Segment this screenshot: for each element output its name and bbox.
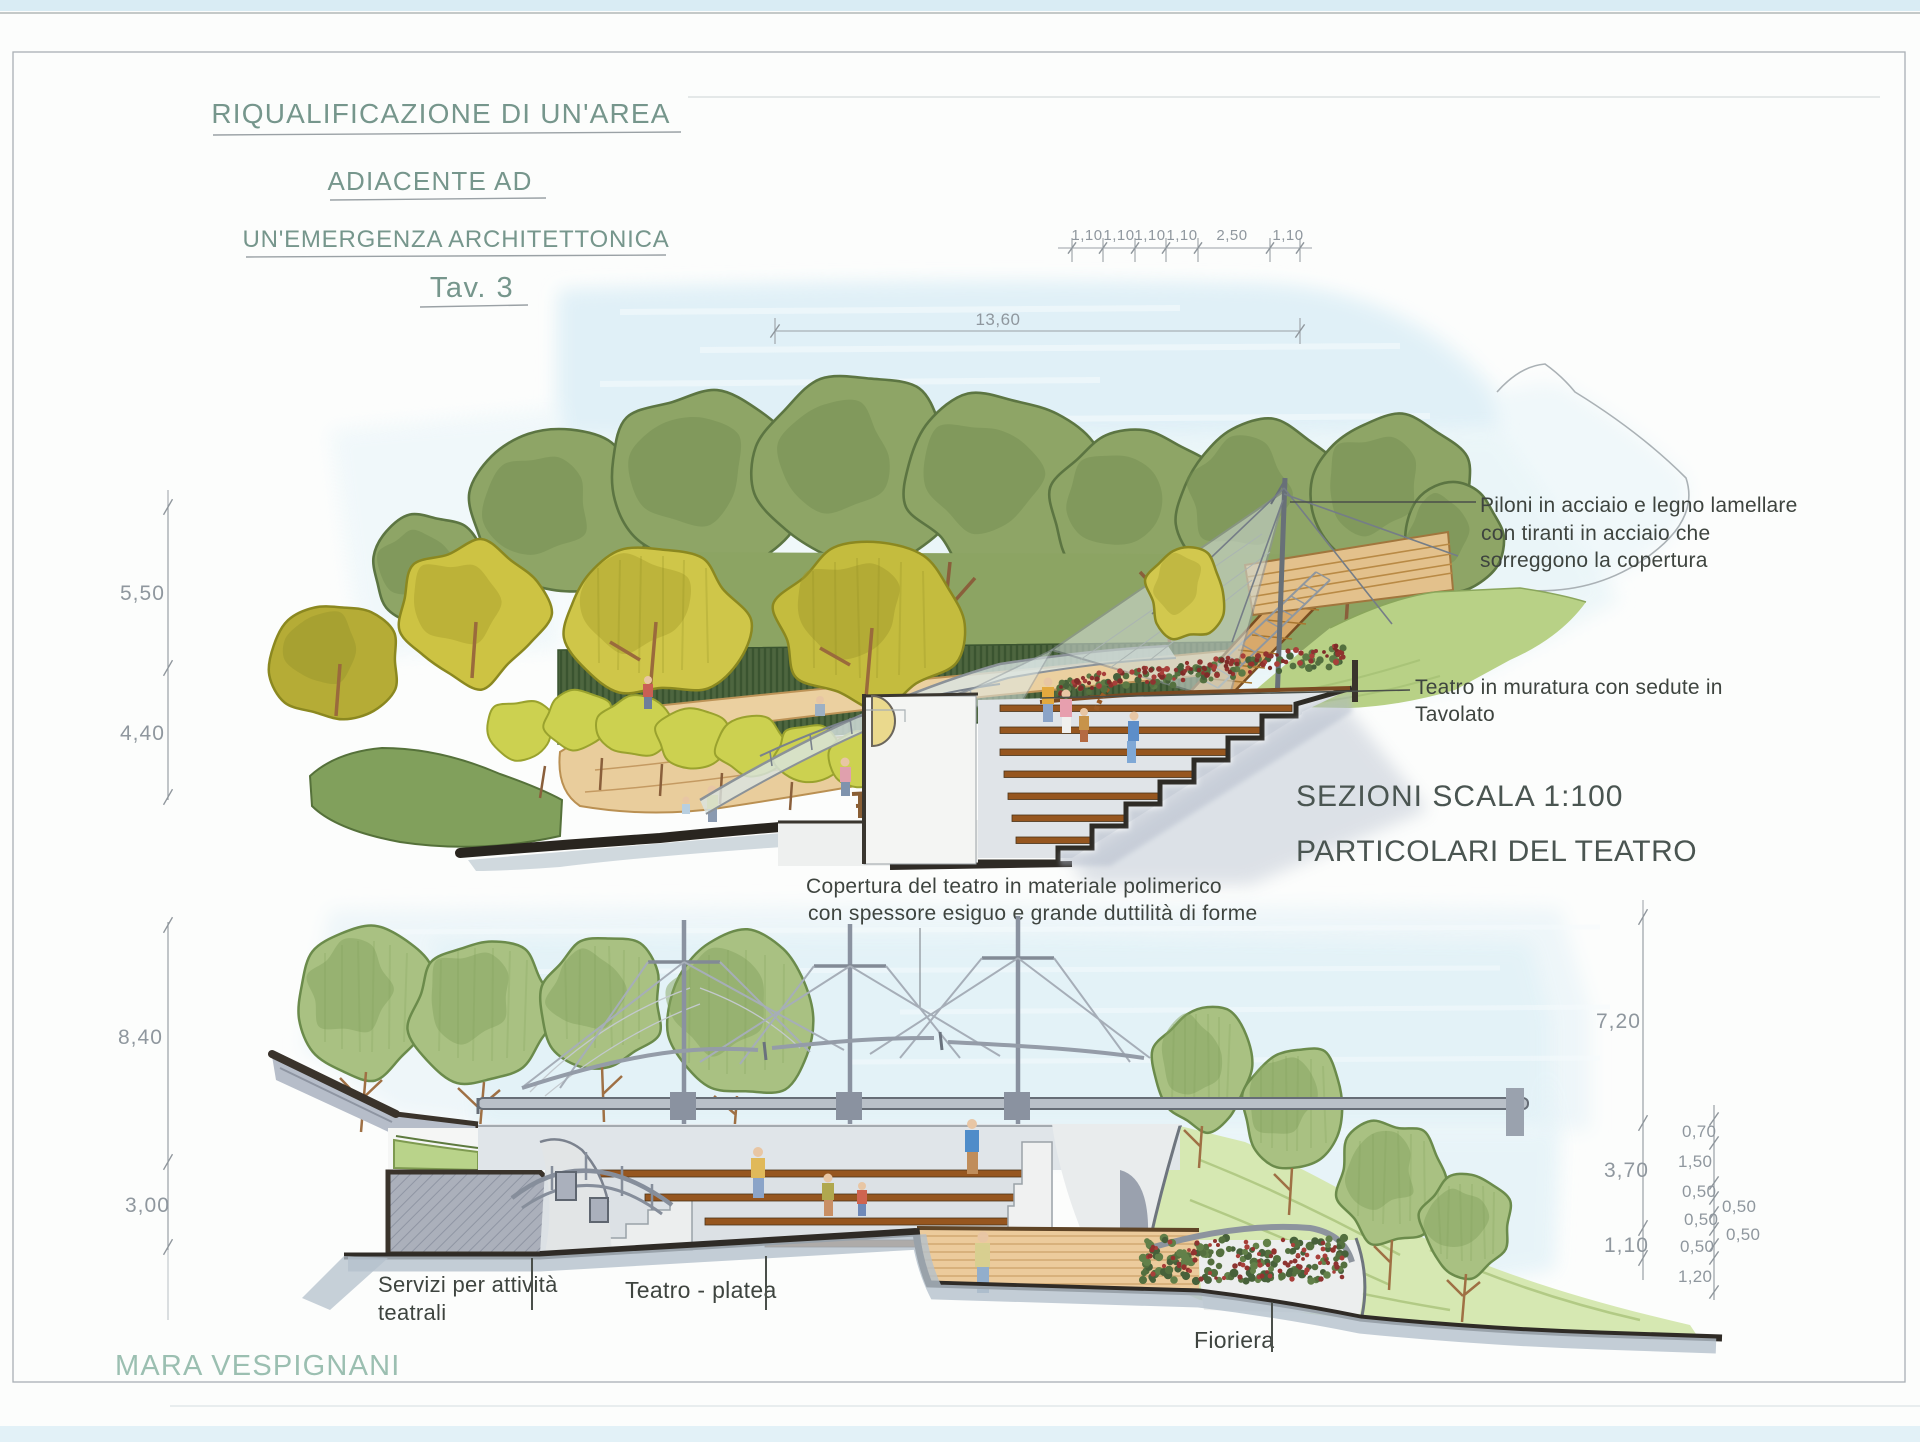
svg-text:8,40: 8,40 [118, 1026, 163, 1049]
svg-text:PARTICOLARI DEL TEATRO: PARTICOLARI DEL TEATRO [1296, 835, 1697, 868]
svg-text:0,50: 0,50 [1722, 1197, 1756, 1216]
svg-text:Teatro in muratura con sedute: Teatro in muratura con sedute in [1415, 676, 1723, 699]
svg-text:con tiranti in acciaio che: con tiranti in acciaio che [1481, 522, 1710, 545]
svg-text:Teatro - platea: Teatro - platea [625, 1277, 777, 1303]
svg-text:3,70: 3,70 [1604, 1159, 1649, 1182]
svg-text:Tav. 3: Tav. 3 [430, 272, 514, 304]
svg-text:1,10: 1,10 [1604, 1234, 1649, 1257]
svg-text:0,50: 0,50 [1726, 1225, 1760, 1244]
svg-text:1,10: 1,10 [1134, 227, 1165, 244]
svg-text:1,10: 1,10 [1166, 227, 1197, 244]
svg-text:0,50: 0,50 [1682, 1182, 1716, 1201]
svg-text:4,40: 4,40 [120, 722, 165, 745]
svg-text:1,10: 1,10 [1272, 227, 1303, 244]
svg-text:ADIACENTE AD: ADIACENTE AD [327, 166, 532, 196]
svg-text:teatrali: teatrali [378, 1300, 446, 1325]
svg-text:1,50: 1,50 [1678, 1152, 1712, 1171]
svg-text:5,50: 5,50 [120, 582, 165, 605]
svg-text:sorreggono la copertura: sorreggono la copertura [1480, 549, 1708, 572]
svg-text:Copertura del teatro in materi: Copertura del teatro in materiale polime… [806, 875, 1222, 898]
svg-text:13,60: 13,60 [975, 310, 1020, 329]
svg-text:con spessore esiguo e grande d: con spessore esiguo e grande duttilità d… [808, 902, 1258, 925]
svg-text:1,20: 1,20 [1678, 1267, 1712, 1286]
svg-text:1,10: 1,10 [1071, 227, 1102, 244]
svg-text:MARA VESPIGNANI: MARA VESPIGNANI [115, 1350, 401, 1382]
svg-text:RIQUALIFICAZIONE DI UN'AREA: RIQUALIFICAZIONE DI UN'AREA [211, 98, 670, 129]
svg-text:7,20: 7,20 [1596, 1010, 1641, 1033]
svg-text:Tavolato: Tavolato [1415, 703, 1495, 726]
svg-text:Piloni in acciaio e legno lame: Piloni in acciaio e legno lamellare [1480, 494, 1798, 517]
svg-text:1,10: 1,10 [1103, 227, 1134, 244]
svg-text:0,50: 0,50 [1684, 1210, 1718, 1229]
svg-text:Fioriera: Fioriera [1194, 1327, 1274, 1353]
svg-text:0,50: 0,50 [1680, 1237, 1714, 1256]
svg-text:SEZIONI SCALA 1:100: SEZIONI SCALA 1:100 [1296, 780, 1623, 813]
svg-text:0,70: 0,70 [1682, 1122, 1716, 1141]
svg-text:UN'EMERGENZA ARCHITETTONICA: UN'EMERGENZA ARCHITETTONICA [242, 226, 669, 253]
svg-text:3,00: 3,00 [125, 1194, 170, 1217]
svg-text:2,50: 2,50 [1216, 227, 1247, 244]
